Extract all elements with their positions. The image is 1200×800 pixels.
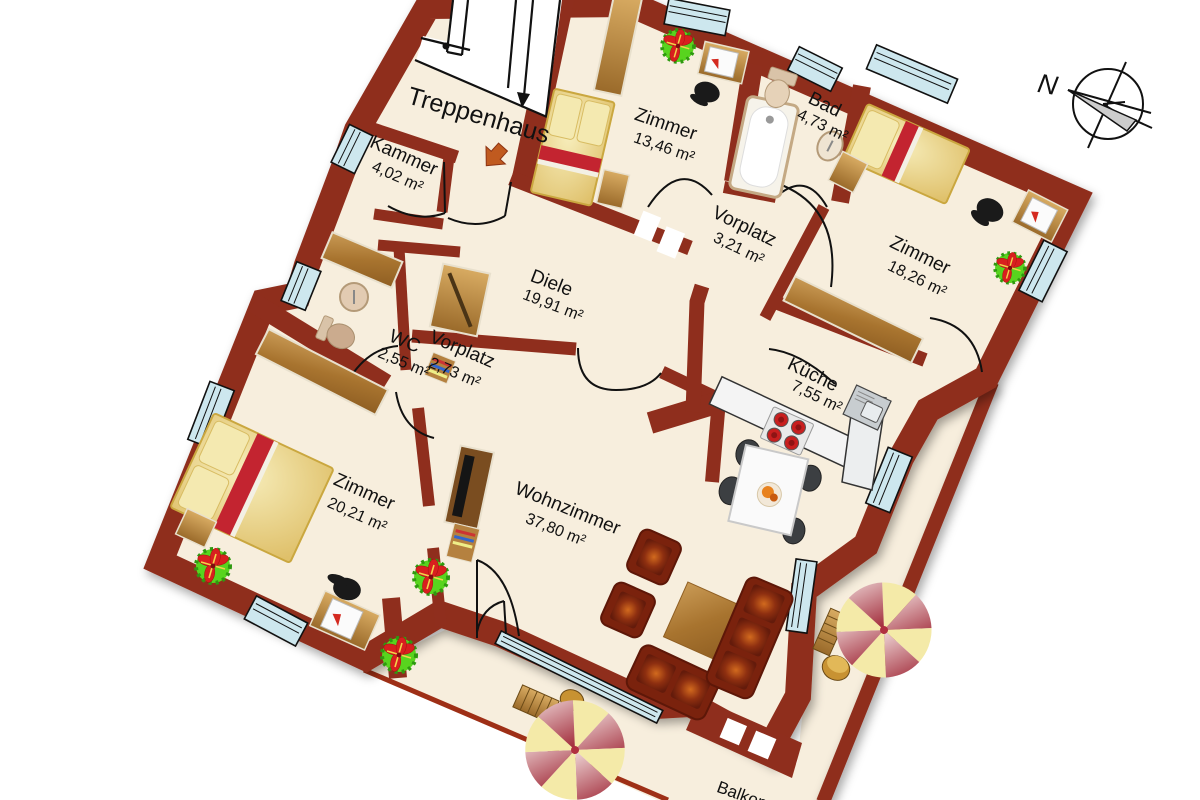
svg-text:N: N — [1035, 68, 1060, 101]
